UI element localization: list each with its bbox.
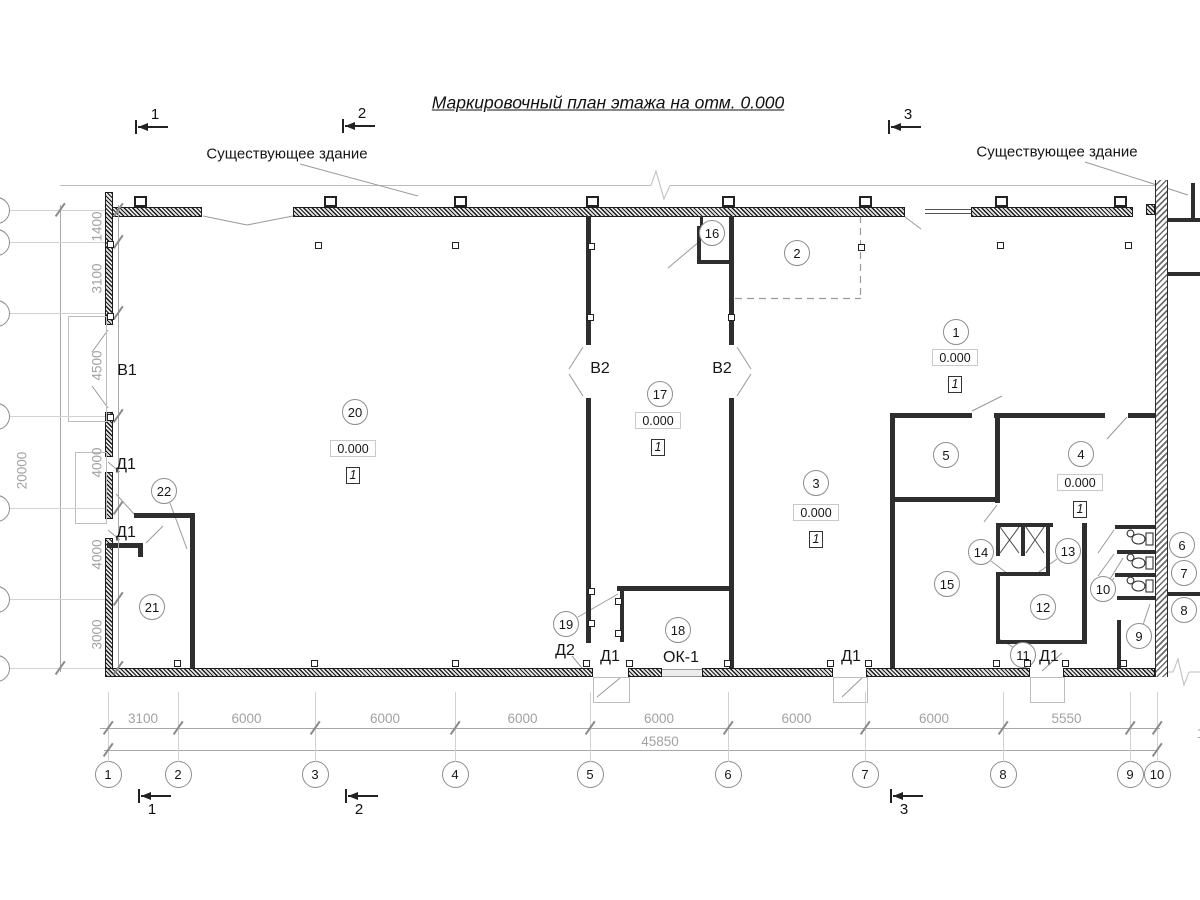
wall-segment — [118, 205, 119, 672]
axis-bubble: 6 — [715, 761, 742, 788]
room-number-marker: 19 — [553, 611, 579, 637]
opening-label: В2 — [560, 360, 640, 378]
opening-label: Д1 — [811, 648, 891, 666]
column-tick — [587, 314, 594, 321]
wall-segment — [1117, 596, 1155, 600]
wall-segment — [1128, 413, 1156, 418]
section-marker-number: 1 — [140, 801, 164, 817]
wall-segment — [1117, 550, 1155, 554]
floor-number-box: 1 — [809, 531, 823, 548]
column-tick — [615, 630, 622, 637]
room-number-marker: 13 — [1055, 538, 1081, 564]
room-number-marker: 15 — [934, 571, 960, 597]
wall-segment — [996, 523, 1000, 556]
room-number-marker: 2 — [784, 240, 810, 266]
wall-segment — [890, 497, 1000, 502]
column-tick — [452, 242, 459, 249]
existing-building-outline — [60, 171, 1200, 685]
room-number-marker: 9 — [1126, 623, 1152, 649]
elevation-value: 0.000 — [1057, 474, 1103, 491]
wall-segment — [1168, 272, 1200, 276]
column-tick — [626, 660, 633, 667]
wall-segment — [617, 586, 733, 591]
section-marker-line — [348, 795, 378, 797]
column-square — [859, 196, 872, 207]
wall-segment — [994, 413, 1105, 418]
column-tick — [107, 241, 114, 248]
column-tick — [311, 660, 318, 667]
wall-segment — [586, 216, 591, 345]
wall-segment — [996, 572, 1050, 576]
room-number-marker: 22 — [151, 478, 177, 504]
dimension-total: 20000 — [15, 431, 30, 511]
room-number-marker: 5 — [933, 442, 959, 468]
column-tick — [997, 242, 1004, 249]
room-number-marker: 20 — [342, 399, 368, 425]
column-tick — [728, 314, 735, 321]
section-marker-bar — [342, 119, 344, 133]
wall-segment — [1168, 592, 1200, 596]
section-marker-bar — [135, 120, 137, 134]
dimension-value: 5550 — [1027, 711, 1107, 726]
dimension-value: 6000 — [483, 711, 563, 726]
wall-segment — [729, 216, 734, 345]
column-tick — [827, 660, 834, 667]
column-tick — [452, 660, 459, 667]
axis-bubble-left — [0, 586, 10, 613]
column-square — [324, 196, 337, 207]
column-square — [454, 196, 467, 207]
axis-bubble-left — [0, 300, 10, 327]
dimension-value: 6000 — [207, 711, 287, 726]
section-marker-number: 2 — [347, 801, 371, 817]
existing-building-wall — [1155, 180, 1168, 677]
wc-fixture-icons — [1127, 530, 1153, 592]
wall-segment — [1146, 204, 1155, 215]
wall-segment — [105, 668, 593, 677]
dimension-value: 3100 — [103, 711, 183, 726]
wall-segment — [190, 513, 195, 668]
wall-segment — [697, 260, 733, 264]
elevation-value: 0.000 — [932, 349, 978, 366]
wall-segment — [1063, 668, 1155, 677]
elevation-value: 0.000 — [793, 504, 839, 521]
room-number-marker: 17 — [647, 381, 673, 407]
column-tick — [107, 414, 114, 421]
room-number-marker: 16 — [699, 220, 725, 246]
axis-bubble: 2 — [165, 761, 192, 788]
column-tick — [174, 660, 181, 667]
dimension-value: 6000 — [757, 711, 837, 726]
room-number-marker: 12 — [1030, 594, 1056, 620]
dimension-value: 3000 — [90, 594, 105, 674]
window-opening-ok1 — [662, 669, 702, 677]
elevation-value: 0.000 — [330, 440, 376, 457]
section-marker-line — [141, 795, 171, 797]
wall-segment — [105, 192, 113, 325]
column-tick — [1125, 242, 1132, 249]
wall-segment — [1191, 183, 1195, 220]
section-marker-number: 3 — [896, 106, 920, 122]
dimension-value: 6000 — [345, 711, 425, 726]
column-tick — [1062, 660, 1069, 667]
column-square — [134, 196, 147, 207]
dimension-value: 4000 — [90, 423, 105, 503]
axis-bubble: 4 — [442, 761, 469, 788]
section-marker-line — [138, 126, 168, 128]
wall-segment — [866, 668, 1030, 677]
room-number-marker: 6 — [1169, 532, 1195, 558]
wall-segment — [890, 413, 895, 668]
column-tick — [724, 660, 731, 667]
wall-segment — [105, 538, 113, 669]
column-tick — [107, 313, 114, 320]
page-title: Маркировочный план этажа на отм. 0.000 — [432, 93, 785, 114]
column-tick — [588, 620, 595, 627]
column-tick — [615, 598, 622, 605]
wall-segment — [1082, 523, 1087, 644]
wall-segment — [628, 668, 662, 677]
wall-segment — [586, 398, 591, 643]
wall-segment — [996, 572, 1000, 644]
axis-bubble: 5 — [577, 761, 604, 788]
wall-segment — [729, 398, 734, 668]
wall-segment — [1168, 218, 1200, 222]
opening-label: Д1 — [1009, 648, 1089, 666]
section-marker-number: 2 — [350, 105, 374, 121]
section-marker-number: 1 — [143, 106, 167, 122]
wall-segment — [833, 677, 868, 703]
section-marker-bar — [888, 120, 890, 134]
section-marker-line — [891, 126, 921, 128]
room-number-marker: 3 — [803, 470, 829, 496]
column-tick — [1120, 660, 1127, 667]
axis-bubble: 1 — [95, 761, 122, 788]
extension-line — [0, 416, 105, 417]
axis-bubble: 8 — [990, 761, 1017, 788]
axis-bubble-left — [0, 403, 10, 430]
column-tick — [315, 242, 322, 249]
room-number-marker: 8 — [1171, 597, 1197, 623]
dimension-value: 4000 — [90, 514, 105, 594]
dimension-value: 6000 — [619, 711, 699, 726]
room-number-marker: 7 — [1171, 560, 1197, 586]
elevation-value: 0.000 — [635, 412, 681, 429]
existing-building-label-right: Существующее здание — [976, 144, 1137, 161]
room-number-marker: 10 — [1090, 576, 1116, 602]
wall-segment — [134, 513, 194, 518]
room-number-marker: 4 — [1068, 441, 1094, 467]
floor-number-box: 1 — [948, 376, 962, 393]
column-tick — [993, 660, 1000, 667]
wall-segment — [995, 413, 1000, 503]
column-square — [586, 196, 599, 207]
room-number-marker: 18 — [665, 617, 691, 643]
column-tick — [588, 243, 595, 250]
column-square — [722, 196, 735, 207]
wall-segment — [293, 207, 905, 217]
axis-bubble: 10 — [1144, 761, 1171, 788]
axis-bubble-left — [0, 495, 10, 522]
floor-plan-canvas: Маркировочный план этажа на отм. 0.000 С… — [0, 0, 1200, 900]
column-tick — [865, 660, 872, 667]
existing-building-label-left: Существующее здание — [206, 146, 367, 163]
section-marker-line — [893, 795, 923, 797]
opening-label: В2 — [682, 360, 762, 378]
wall-segment — [138, 543, 143, 557]
window-strip — [925, 209, 971, 214]
floor-number-box: 1 — [346, 467, 360, 484]
axis-bubble-left — [0, 229, 10, 256]
wall-segment — [1046, 523, 1050, 576]
axis-bubble-left — [0, 197, 10, 224]
wall-segment — [702, 668, 833, 677]
column-tick — [588, 588, 595, 595]
dimension-value: 6000 — [894, 711, 974, 726]
wall-segment — [104, 750, 1158, 751]
wall-segment — [60, 205, 61, 672]
column-tick — [1024, 660, 1031, 667]
axis-bubble: 9 — [1117, 761, 1144, 788]
column-tick — [858, 244, 865, 251]
wall-segment — [1115, 573, 1155, 577]
room-number-marker: 14 — [968, 539, 994, 565]
wall-segment — [1115, 525, 1155, 529]
dimension-value: 4500 — [90, 325, 105, 405]
wall-segment — [1030, 677, 1065, 703]
dimension-value: 3100 — [90, 238, 105, 318]
dimension-total: 45850 — [620, 734, 700, 749]
wall-segment — [971, 207, 1133, 217]
column-square — [995, 196, 1008, 207]
dimension-offset: 1200 — [1182, 726, 1200, 741]
section-marker-line — [345, 125, 375, 127]
axis-bubble-left — [0, 655, 10, 682]
axis-bubble: 7 — [852, 761, 879, 788]
wall-segment — [1021, 523, 1025, 556]
floor-number-box: 1 — [1073, 501, 1087, 518]
wall-segment — [593, 677, 630, 703]
axis-bubble: 3 — [302, 761, 329, 788]
column-square — [1114, 196, 1127, 207]
opening-label: ОК-1 — [641, 649, 721, 667]
wall-segment — [996, 640, 1087, 644]
room-number-marker: 21 — [139, 594, 165, 620]
wall-segment — [890, 413, 972, 418]
floor-number-box: 1 — [651, 439, 665, 456]
column-tick — [583, 660, 590, 667]
room-number-marker: 1 — [943, 319, 969, 345]
section-marker-number: 3 — [892, 801, 916, 817]
